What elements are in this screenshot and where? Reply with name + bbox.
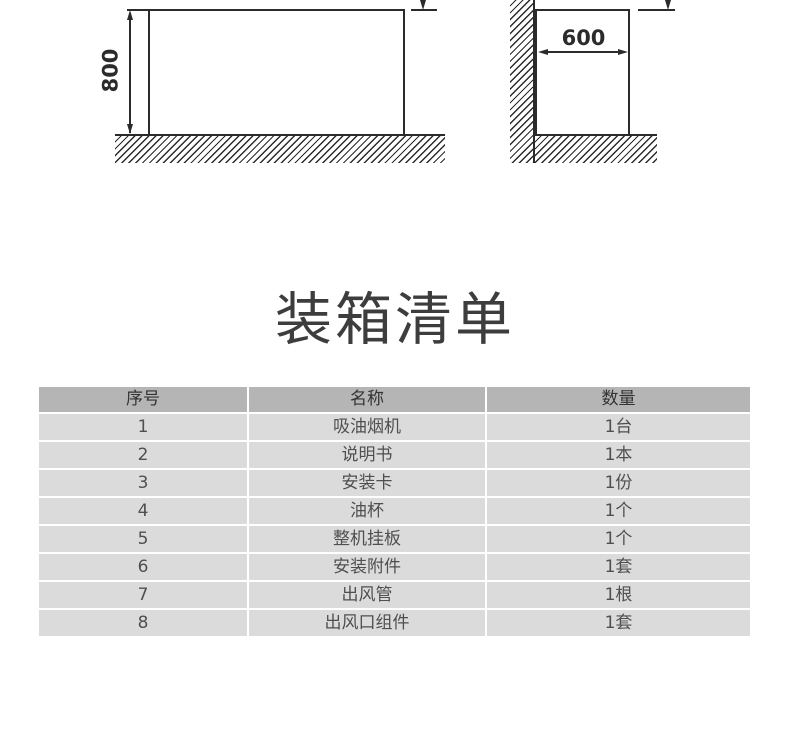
arrowhead-right-icon	[618, 49, 628, 55]
cell-seq: 3	[39, 470, 247, 496]
height-dimension-line	[129, 13, 131, 133]
cell-seq: 1	[39, 414, 247, 440]
cell-seq: 2	[39, 442, 247, 468]
cell-name: 吸油烟机	[249, 414, 485, 440]
cell-seq: 7	[39, 582, 247, 608]
cell-qty: 1套	[487, 554, 750, 580]
cell-name: 整机挂板	[249, 526, 485, 552]
cell-qty: 1份	[487, 470, 750, 496]
cell-name: 安装附件	[249, 554, 485, 580]
cell-seq: 8	[39, 610, 247, 636]
packing-list-table: 序号 名称 数量 1 吸油烟机 1台 2 说明书 1本 3 安装卡 1份 4 油…	[39, 387, 750, 636]
arrowhead-down-icon	[665, 0, 671, 10]
arrowhead-up-icon	[127, 10, 133, 20]
arrowhead-down-icon	[127, 124, 133, 134]
height-dimension-label: 800	[101, 45, 122, 97]
page-title: 装箱清单	[0, 289, 790, 352]
column-header-seq: 序号	[39, 387, 247, 412]
arrowhead-left-icon	[538, 49, 548, 55]
floor-hatch	[115, 134, 445, 163]
hood-outline	[148, 9, 405, 136]
cell-name: 说明书	[249, 442, 485, 468]
column-header-qty: 数量	[487, 387, 750, 412]
front-view-diagram: 800	[0, 0, 470, 170]
depth-dimension-line	[541, 51, 625, 53]
cell-name: 油杯	[249, 498, 485, 524]
floor-hatch	[535, 134, 657, 163]
cell-qty: 1个	[487, 498, 750, 524]
cell-qty: 1台	[487, 414, 750, 440]
column-header-name: 名称	[249, 387, 485, 412]
cell-seq: 4	[39, 498, 247, 524]
cell-qty: 1套	[487, 610, 750, 636]
manual-page: 800 600 装箱清单 序号 名称 数量 1 吸油烟机 1台 2 说明书	[0, 0, 790, 735]
cell-name: 出风管	[249, 582, 485, 608]
side-view-diagram: 600	[470, 0, 790, 170]
cell-seq: 6	[39, 554, 247, 580]
cell-qty: 1本	[487, 442, 750, 468]
cell-seq: 5	[39, 526, 247, 552]
cell-qty: 1根	[487, 582, 750, 608]
cell-qty: 1个	[487, 526, 750, 552]
cell-name: 出风口组件	[249, 610, 485, 636]
depth-dimension-label: 600	[537, 28, 630, 49]
arrowhead-down-icon	[420, 0, 426, 10]
wall-hatch	[510, 0, 535, 163]
cell-name: 安装卡	[249, 470, 485, 496]
